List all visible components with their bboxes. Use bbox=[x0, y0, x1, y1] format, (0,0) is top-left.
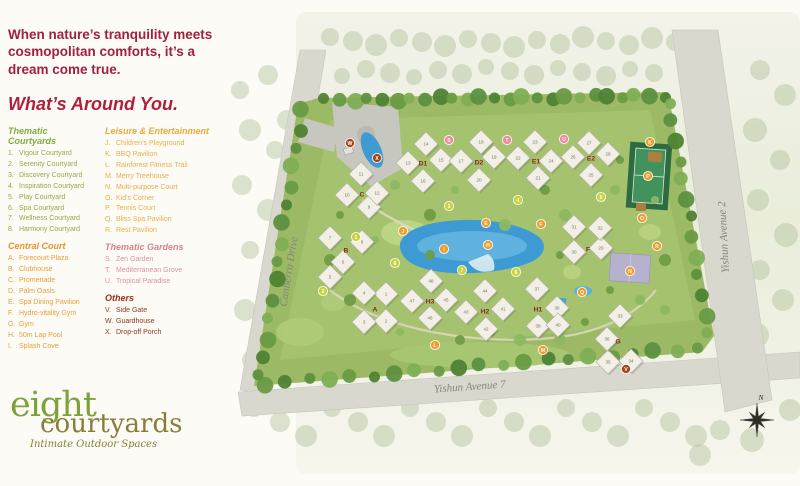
building-number: 45 bbox=[443, 298, 449, 303]
boundary-tree bbox=[283, 158, 300, 175]
garden-tree bbox=[514, 334, 526, 346]
legend-item: 3.Discovery Courtyard bbox=[8, 171, 96, 182]
building-number: 25 bbox=[588, 173, 594, 178]
building-number: 36 bbox=[604, 337, 610, 342]
legend-column-1: Thematic Courtyards1.Vigour Courtyard2.S… bbox=[8, 126, 96, 357]
development-logo: eight courtyards Intimate Outdoor Spaces bbox=[10, 391, 182, 450]
boundary-tree bbox=[281, 200, 292, 211]
offsite-tree bbox=[503, 36, 525, 58]
boundary-tree bbox=[273, 214, 290, 231]
building-number: 11 bbox=[359, 172, 364, 177]
building-number: 42 bbox=[483, 327, 489, 332]
offsite-tree bbox=[740, 428, 764, 452]
map-marker-label: W bbox=[348, 141, 353, 147]
boundary-tree bbox=[684, 230, 698, 244]
legend-item: 8.Harmony Courtyard bbox=[8, 225, 96, 236]
logo-name-bottom: courtyards bbox=[40, 413, 182, 436]
building-number: 9 bbox=[368, 205, 371, 210]
boundary-tree bbox=[489, 93, 500, 104]
building-number: 48 bbox=[428, 279, 434, 284]
building-number: 29 bbox=[598, 246, 604, 251]
boundary-tree bbox=[361, 93, 372, 104]
boundary-tree bbox=[260, 332, 277, 349]
offsite-tree bbox=[504, 412, 524, 432]
boundary-tree bbox=[472, 358, 486, 372]
map-marker-label: Q bbox=[580, 290, 584, 296]
building-number: 15 bbox=[438, 158, 444, 163]
map-marker-label: 2 bbox=[322, 289, 325, 295]
logo-tagline: Intimate Outdoor Spaces bbox=[30, 439, 182, 450]
legend-item: 2.Serenity Courtyard bbox=[8, 160, 96, 171]
offsite-tree bbox=[390, 29, 408, 47]
boundary-tree bbox=[513, 88, 530, 105]
building-number: 40 bbox=[555, 323, 561, 328]
boundary-tree bbox=[333, 93, 347, 107]
map-marker-label: 1 bbox=[355, 235, 358, 241]
legend-item: H.50m Lap Pool bbox=[8, 331, 96, 342]
building-number: 24 bbox=[548, 159, 554, 164]
area-label-D1: D1 bbox=[419, 160, 428, 167]
legend-category: Thematic Courtyards1.Vigour Courtyard2.S… bbox=[8, 126, 96, 236]
map-marker-label: 4 bbox=[517, 198, 520, 204]
boundary-tree bbox=[386, 365, 403, 382]
offsite-tree bbox=[452, 64, 472, 84]
legend-category: OthersV.Side GateW.GuardhouseX.Drop-off … bbox=[105, 293, 232, 339]
building-number: 22 bbox=[515, 156, 521, 161]
boundary-tree bbox=[470, 88, 487, 105]
offsite-tree bbox=[380, 63, 400, 83]
offsite-tree bbox=[481, 33, 501, 53]
garden-tree bbox=[451, 186, 459, 194]
building-number: 38 bbox=[554, 306, 560, 311]
boundary-tree bbox=[304, 373, 315, 384]
building-number: 13 bbox=[405, 161, 411, 166]
boundary-tree bbox=[702, 327, 713, 338]
garden-tree bbox=[659, 254, 671, 266]
map-marker-label: 5 bbox=[600, 195, 603, 201]
section-title: What’s Around You. bbox=[8, 94, 178, 115]
garden-tree bbox=[610, 185, 620, 195]
legend-item: S.Zen Garden bbox=[105, 255, 232, 266]
offsite-tree bbox=[779, 399, 800, 421]
map-marker-label: V bbox=[624, 367, 628, 373]
legend-item: F.Hydro-vitality Gym bbox=[8, 309, 96, 320]
legend-item: N.Multi-purpose Court bbox=[105, 183, 232, 194]
building-number: 6 bbox=[342, 260, 345, 265]
legend-item: C.Promenade bbox=[8, 276, 96, 287]
boundary-tree bbox=[678, 191, 695, 208]
map-marker-label: H bbox=[486, 243, 490, 249]
lawn-patch bbox=[563, 265, 581, 279]
offsite-tree bbox=[774, 223, 798, 247]
headline: When nature’s tranquility meets cosmopol… bbox=[8, 26, 226, 78]
offsite-tree bbox=[529, 425, 551, 447]
boundary-tree bbox=[292, 101, 309, 118]
building-number: 30 bbox=[571, 250, 577, 255]
garden-tree bbox=[344, 294, 356, 306]
garden-tree bbox=[425, 250, 435, 260]
map-marker-label: N bbox=[628, 269, 632, 275]
garden-tree bbox=[660, 305, 670, 315]
area-label-A: A bbox=[373, 306, 378, 313]
map-marker-label: E bbox=[484, 221, 488, 227]
offsite-tree bbox=[660, 412, 680, 432]
boundary-tree bbox=[575, 92, 586, 103]
map-marker-label: U bbox=[562, 137, 566, 143]
boundary-tree bbox=[580, 348, 597, 365]
legend-category-title: Leisure & Entertainment bbox=[105, 126, 232, 136]
map-marker-label: M bbox=[541, 348, 545, 354]
building-number: 23 bbox=[532, 140, 538, 145]
boundary-tree bbox=[404, 93, 415, 104]
map-marker-label: 6 bbox=[515, 270, 518, 276]
offsite-tree bbox=[295, 425, 317, 447]
legend-item: 1.Vigour Courtyard bbox=[8, 149, 96, 160]
building-number: 3 bbox=[363, 320, 366, 325]
offsite-tree bbox=[334, 68, 350, 84]
legend-item: L.Rainforest Fitness Trail bbox=[105, 161, 232, 172]
building-number: 26 bbox=[570, 155, 576, 160]
map-marker-label: S bbox=[447, 138, 451, 144]
legend-item: R.Rest Pavilion bbox=[105, 226, 232, 237]
offsite-tree bbox=[685, 425, 707, 447]
boundary-tree bbox=[676, 157, 687, 168]
map-marker-label: R bbox=[655, 244, 659, 250]
boundary-tree bbox=[434, 366, 445, 377]
pavilion-deck bbox=[636, 203, 646, 211]
legend-item: P.Tennis Court bbox=[105, 204, 232, 215]
offsite-tree bbox=[426, 412, 446, 432]
boundary-tree bbox=[272, 256, 283, 267]
building-number: 7 bbox=[329, 236, 332, 241]
offsite-tree bbox=[557, 399, 575, 417]
legend-category-title: Thematic Courtyards bbox=[8, 126, 96, 146]
building-number: 28 bbox=[605, 152, 611, 157]
legend-item: M.Merry Treehouse bbox=[105, 172, 232, 183]
offsite-tree bbox=[582, 412, 602, 432]
building-number: 34 bbox=[628, 359, 634, 364]
area-label-F: F bbox=[586, 246, 590, 253]
building-number: 39 bbox=[535, 324, 541, 329]
boundary-tree bbox=[498, 360, 509, 371]
offsite-tree bbox=[572, 26, 594, 48]
offsite-tree bbox=[232, 175, 252, 195]
legend-item: W.Guardhouse bbox=[105, 317, 232, 328]
boundary-tree bbox=[598, 88, 615, 105]
offsite-tree bbox=[641, 27, 663, 49]
garden-tree bbox=[606, 286, 614, 294]
area-label-B: B bbox=[344, 247, 349, 254]
boundary-tree bbox=[347, 93, 364, 110]
boundary-tree bbox=[451, 360, 468, 377]
map-marker-label: K bbox=[648, 140, 652, 146]
boundary-tree bbox=[686, 211, 697, 222]
boundary-tree bbox=[674, 172, 688, 186]
offsite-tree bbox=[622, 61, 638, 77]
building-number: 5 bbox=[329, 275, 332, 280]
building-number: 31 bbox=[571, 225, 577, 230]
offsite-tree bbox=[573, 63, 591, 81]
garden-tree bbox=[455, 335, 465, 345]
legend-item: 7.Wellness Courtyard bbox=[8, 214, 96, 225]
legend-item: J.Children’s Playground bbox=[105, 139, 232, 150]
legend-item: E.Spa Dining Pavilion bbox=[8, 298, 96, 309]
area-label-C: C bbox=[360, 191, 365, 198]
boundary-tree bbox=[375, 93, 389, 107]
legend-item: 6.Spa Courtyard bbox=[8, 204, 96, 215]
area-label-E1: E1 bbox=[532, 158, 541, 165]
area-label-H1: H1 bbox=[534, 306, 543, 313]
building-number: 37 bbox=[534, 287, 540, 292]
building-number: 46 bbox=[427, 316, 433, 321]
offsite-tree bbox=[772, 289, 794, 311]
boundary-tree bbox=[342, 369, 356, 383]
building-number: 35 bbox=[605, 360, 611, 365]
legend-column-2: Leisure & EntertainmentJ.Children’s Play… bbox=[105, 126, 232, 357]
area-label-H2: H2 bbox=[481, 308, 490, 315]
boundary-tree bbox=[369, 372, 380, 383]
brochure-page: 1234567891011121314151617181920212223242… bbox=[0, 0, 800, 486]
boundary-tree bbox=[532, 92, 543, 103]
boundary-tree bbox=[671, 345, 685, 359]
building-number: 47 bbox=[409, 299, 415, 304]
legend-item: I.Splash Cove bbox=[8, 342, 96, 353]
offsite-tree bbox=[750, 60, 770, 80]
offsite-tree bbox=[239, 119, 261, 141]
offsite-tree bbox=[619, 35, 639, 55]
building-number: 17 bbox=[458, 159, 464, 164]
offsite-tree bbox=[528, 31, 546, 49]
offsite-tree bbox=[597, 32, 615, 50]
map-legend: Thematic Courtyards1.Vigour Courtyard2.S… bbox=[8, 126, 232, 357]
offsite-tree bbox=[550, 60, 566, 76]
offsite-tree bbox=[747, 189, 769, 211]
offsite-tree bbox=[241, 241, 259, 259]
legend-item: B.Clubhouse bbox=[8, 265, 96, 276]
offsite-tree bbox=[596, 66, 616, 86]
offsite-tree bbox=[645, 64, 663, 82]
lawn-patch bbox=[276, 318, 324, 346]
offsite-tree bbox=[459, 30, 477, 48]
legend-item: U.Tropical Paradise bbox=[105, 277, 232, 288]
legend-item: V.Side Gate bbox=[105, 306, 232, 317]
building-number: 8 bbox=[361, 240, 364, 245]
boundary-tree bbox=[262, 313, 273, 324]
legend-category-title: Others bbox=[105, 293, 232, 303]
building-number: 44 bbox=[482, 289, 488, 294]
offsite-tree bbox=[501, 62, 519, 80]
map-marker-label: 7 bbox=[461, 268, 464, 274]
offsite-tree bbox=[357, 60, 375, 78]
building-number: 27 bbox=[586, 141, 592, 146]
offsite-tree bbox=[710, 420, 730, 440]
offsite-tree bbox=[524, 65, 544, 85]
building-number: 19 bbox=[491, 155, 497, 160]
legend-item: 4.Inspiration Courtyard bbox=[8, 182, 96, 193]
legend-item: D.Palm Oasis bbox=[8, 287, 96, 298]
building-number: 10 bbox=[344, 193, 350, 198]
area-label-H3: H3 bbox=[426, 298, 435, 305]
boundary-tree bbox=[285, 181, 299, 195]
garden-tree bbox=[424, 209, 436, 221]
area-label-D2: D2 bbox=[475, 159, 484, 166]
building-number: 41 bbox=[500, 307, 506, 312]
map-marker-label: 3 bbox=[448, 204, 451, 210]
garden-tree bbox=[635, 295, 645, 305]
offsite-tree bbox=[550, 34, 570, 54]
offsite-tree bbox=[231, 81, 249, 99]
legend-item: G.Gym bbox=[8, 320, 96, 331]
boundary-tree bbox=[556, 88, 573, 105]
building-number: 21 bbox=[535, 176, 541, 181]
building-number: 33 bbox=[617, 314, 623, 319]
legend-item: T.Mediterranean Grove bbox=[105, 266, 232, 277]
garden-tree bbox=[581, 318, 589, 326]
boundary-tree bbox=[390, 93, 407, 110]
boundary-tree bbox=[691, 269, 702, 280]
legend-category: Leisure & EntertainmentJ.Children’s Play… bbox=[105, 126, 232, 237]
boundary-tree bbox=[626, 88, 640, 102]
offsite-tree bbox=[258, 65, 278, 85]
boundary-tree bbox=[407, 363, 421, 377]
offsite-tree bbox=[429, 61, 447, 79]
boundary-tree bbox=[294, 124, 308, 138]
offsite-tree bbox=[479, 399, 497, 417]
area-label-G: G bbox=[615, 338, 620, 345]
building-number: 14 bbox=[423, 142, 429, 147]
offsite-tree bbox=[689, 444, 711, 466]
map-marker-label: O bbox=[640, 216, 644, 222]
offsite-tree bbox=[348, 412, 368, 432]
boundary-tree bbox=[253, 369, 264, 380]
offsite-tree bbox=[321, 28, 339, 46]
boundary-tree bbox=[644, 342, 661, 359]
offsite-tree bbox=[343, 31, 363, 51]
boundary-tree bbox=[291, 143, 302, 154]
boundary-tree bbox=[318, 93, 329, 104]
offsite-tree bbox=[774, 84, 796, 106]
legend-item: Q.Bliss Spa Pavilion bbox=[105, 215, 232, 226]
boundary-tree bbox=[278, 375, 292, 389]
boundary-tree bbox=[515, 354, 532, 371]
offsite-tree bbox=[770, 150, 790, 170]
map-marker-label: X bbox=[375, 156, 379, 162]
building-number: 1 bbox=[385, 292, 388, 297]
offsite-tree bbox=[478, 59, 494, 75]
offsite-tree bbox=[373, 425, 395, 447]
legend-category-title: Thematic Gardens bbox=[105, 242, 232, 252]
bbq-pavilion-deck bbox=[648, 152, 663, 163]
legend-category: Central CourtA.Forecourt PlazaB.Clubhous… bbox=[8, 241, 96, 352]
offsite-tree bbox=[635, 399, 653, 417]
offsite-tree bbox=[412, 32, 432, 52]
boundary-tree bbox=[321, 371, 338, 388]
boundary-tree bbox=[641, 88, 658, 105]
building-number: 2 bbox=[385, 319, 388, 324]
building-number: 43 bbox=[463, 310, 469, 315]
boundary-tree bbox=[688, 250, 705, 267]
map-marker-label: 8 bbox=[394, 261, 397, 267]
offsite-tree bbox=[270, 412, 290, 432]
info-panel: When nature’s tranquility meets cosmopol… bbox=[0, 0, 232, 486]
map-marker-label: J bbox=[402, 229, 405, 235]
building-number: 18 bbox=[478, 140, 484, 145]
garden-tree bbox=[559, 209, 571, 221]
boundary-tree bbox=[667, 133, 684, 150]
area-label-E2: E2 bbox=[587, 155, 596, 162]
garden-tree bbox=[336, 211, 344, 219]
offsite-tree bbox=[607, 425, 629, 447]
boundary-tree bbox=[663, 113, 677, 127]
offsite-tree bbox=[406, 69, 422, 85]
garden-tree bbox=[651, 196, 659, 204]
garden-tree bbox=[396, 328, 404, 336]
boundary-tree bbox=[692, 343, 703, 354]
legend-item: K.BBQ Pavilion bbox=[105, 150, 232, 161]
offsite-tree bbox=[743, 118, 767, 142]
boundary-tree bbox=[695, 288, 709, 302]
building-number: 12 bbox=[374, 191, 380, 196]
legend-item: O.Kid’s Corner bbox=[105, 194, 232, 205]
boundary-tree bbox=[699, 308, 716, 325]
offsite-tree bbox=[451, 425, 473, 447]
offsite-tree bbox=[434, 35, 456, 57]
building-number: 20 bbox=[476, 178, 482, 183]
building-number: 16 bbox=[420, 179, 426, 184]
compass-north-label: N bbox=[757, 393, 764, 402]
legend-category: Thematic GardensS.Zen GardenT.Mediterran… bbox=[105, 242, 232, 288]
garden-tree bbox=[390, 180, 400, 190]
map-marker-label: P bbox=[646, 174, 650, 180]
boundary-tree bbox=[446, 93, 457, 104]
offsite-tree bbox=[365, 34, 387, 56]
boundary-tree bbox=[418, 93, 432, 107]
legend-item: X.Drop-off Porch bbox=[105, 328, 232, 339]
legend-category-title: Central Court bbox=[8, 241, 96, 251]
garden-tree bbox=[499, 219, 511, 231]
map-marker-label: F bbox=[539, 222, 542, 228]
legend-item: A.Forecourt Plaza bbox=[8, 254, 96, 265]
building-number: 32 bbox=[597, 226, 603, 231]
boundary-tree bbox=[256, 351, 270, 365]
boundary-tree bbox=[563, 354, 574, 365]
lawn-patch bbox=[639, 224, 661, 240]
building-number: 4 bbox=[363, 291, 366, 296]
legend-item: 5.Play Courtyard bbox=[8, 193, 96, 204]
boundary-tree bbox=[665, 98, 676, 109]
